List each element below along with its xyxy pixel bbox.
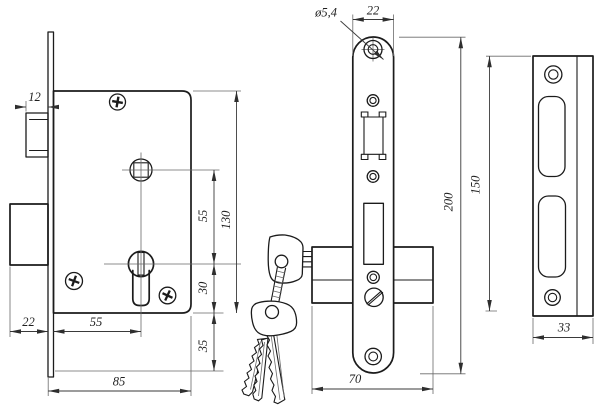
strike-screw-hole-top: [545, 66, 562, 83]
dim-label-spindle-to-cylinder: 55: [196, 210, 210, 223]
key-bundle: [242, 301, 297, 403]
strike-plate-view: 150 33: [469, 56, 594, 344]
dim-label-latch-width: 12: [28, 90, 41, 104]
faceplate-front: [353, 37, 394, 373]
keys-illustration: [242, 235, 312, 404]
dimensions-strike: 150 33: [469, 56, 594, 344]
dim-label-strike-width: 33: [557, 321, 571, 335]
strike-screw-hole-bottom: [545, 290, 561, 306]
strike-deadbolt-cutout: [539, 196, 566, 277]
dim-label-case-depth: 85: [113, 375, 126, 389]
phillips-screw-top: [110, 94, 126, 110]
dim-label-faceplate-overhang: 35: [196, 340, 210, 354]
phillips-screw-right: [159, 287, 176, 304]
dim-label-screw-hole-diameter: ø5,4: [314, 6, 337, 20]
dim-label-deadbolt-throw: 22: [22, 315, 35, 329]
lock-technical-drawing-page: 12 22 55 85 55 130 30 35: [0, 0, 600, 416]
lock-body-side-view: 12 22 55 85 55 130 30 35: [10, 32, 241, 396]
strike-latch-cutout: [539, 97, 566, 177]
dim-label-faceplate-width: 22: [367, 4, 380, 18]
dim-label-case-height: 130: [219, 210, 233, 230]
latch-bolt: [26, 113, 48, 157]
dim-label-cylinder-to-bottom: 30: [196, 281, 210, 295]
inserted-key-bow: [268, 235, 303, 283]
dimensions-side: 12 22 55 85 55 130 30 35: [10, 90, 237, 391]
dim-label-faceplate-length: 200: [442, 192, 456, 212]
dim-label-strike-length: 150: [469, 175, 483, 195]
phillips-screw-left: [66, 273, 83, 290]
lock-technical-drawing: 12 22 55 85 55 130 30 35: [0, 0, 600, 416]
strike-plate: [533, 56, 593, 316]
deadbolt: [10, 204, 48, 265]
dim-label-backset: 55: [90, 315, 103, 329]
dim-label-case-width: 70: [349, 372, 362, 386]
faceplate-front-view: 22 ø5,4 200 70: [242, 4, 466, 404]
